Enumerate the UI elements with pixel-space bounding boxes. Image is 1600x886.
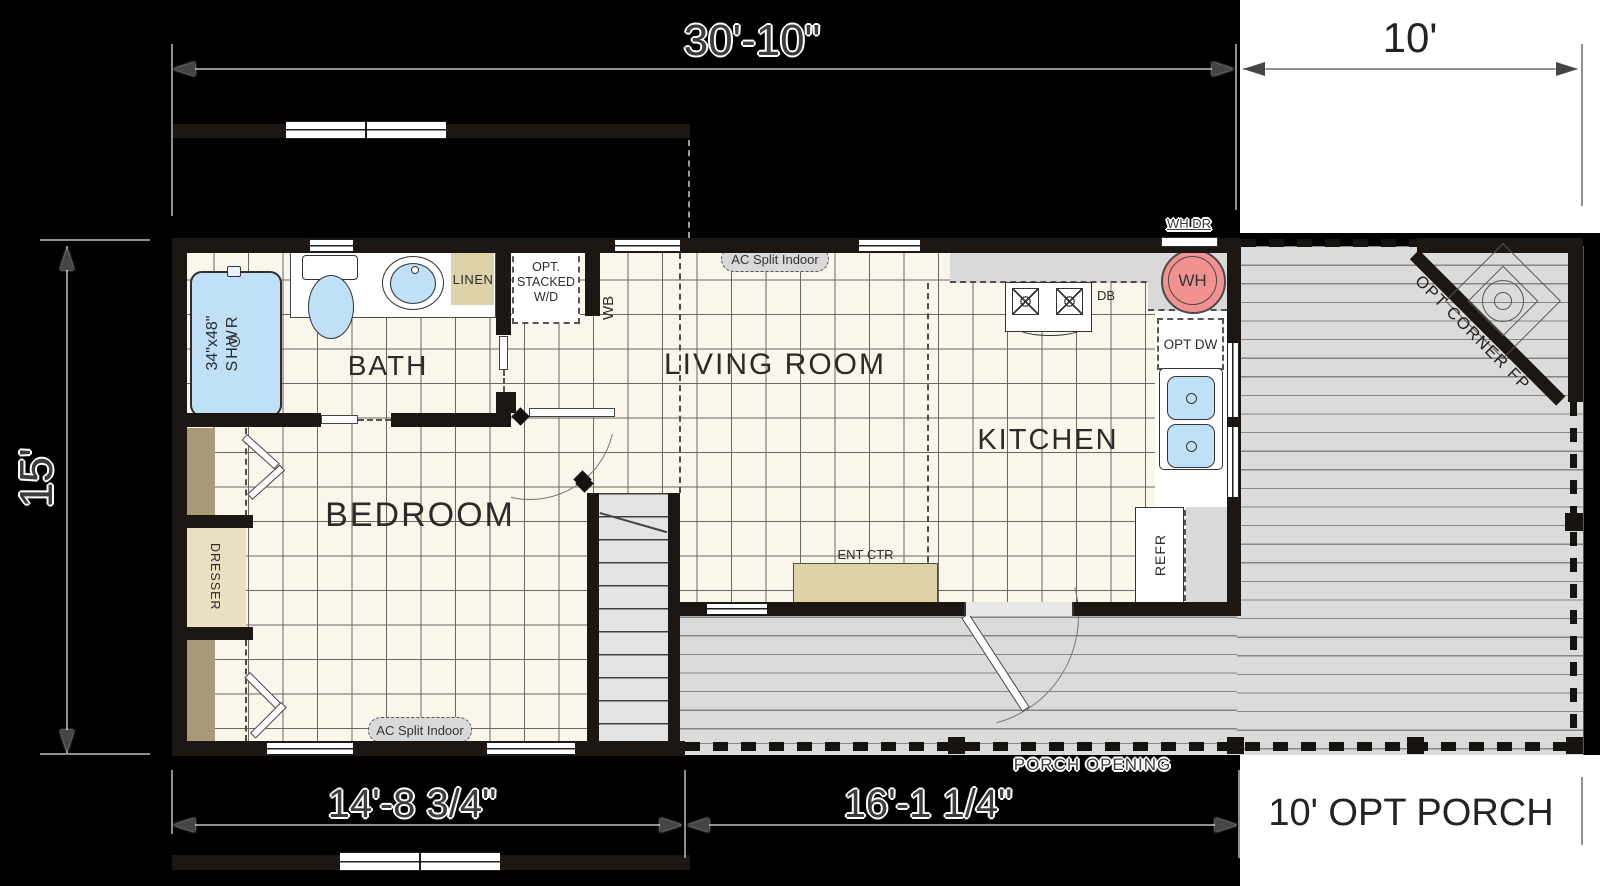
dim-arrow-left bbox=[173, 818, 195, 832]
window bbox=[1227, 427, 1239, 497]
closet-wall-stub bbox=[172, 515, 253, 528]
window bbox=[859, 239, 920, 252]
pocket-door-leaf bbox=[499, 336, 508, 370]
sink-drain-icon bbox=[1186, 441, 1197, 452]
wall-bedroom-bottom bbox=[172, 741, 685, 756]
window-divider bbox=[419, 852, 421, 871]
pocket-door-leaf bbox=[321, 415, 358, 424]
burner-icon bbox=[1056, 288, 1083, 315]
window bbox=[1227, 343, 1239, 417]
window bbox=[707, 603, 767, 615]
dim-arrow-right bbox=[660, 818, 682, 832]
dim-line bbox=[176, 68, 1232, 70]
stairs bbox=[599, 493, 668, 750]
stairs-wall-right bbox=[668, 493, 680, 751]
wall-corner-block bbox=[496, 392, 516, 413]
dim-arrow-up bbox=[60, 248, 74, 270]
shower-label: 34"x48" SHWR bbox=[203, 275, 249, 411]
wh-access-door bbox=[1161, 237, 1218, 247]
stairs-wall-left bbox=[587, 493, 599, 751]
dresser-label: DRESSER bbox=[208, 543, 222, 610]
porch-opening-rail bbox=[685, 742, 1583, 751]
porch-post bbox=[1227, 737, 1244, 754]
dim-arrow-left bbox=[1243, 62, 1265, 76]
window bbox=[615, 239, 680, 252]
wh-dr-label: WH DR bbox=[1154, 216, 1224, 231]
extension-line bbox=[1581, 777, 1583, 845]
wd-label-line1: OPT. bbox=[514, 260, 578, 275]
door-leaf bbox=[529, 408, 615, 417]
porch-top-dashed-edge bbox=[1241, 239, 1417, 247]
dim-arrow-left bbox=[687, 818, 709, 832]
oven-handle-arc bbox=[1016, 318, 1084, 336]
porch-door-opening bbox=[964, 602, 1074, 616]
dim-module2: 16'-1 1/4" bbox=[778, 782, 1078, 827]
opt-dw-box: OPT DW bbox=[1157, 318, 1224, 370]
porch-post bbox=[1407, 737, 1424, 754]
porch-post bbox=[1566, 737, 1583, 754]
closet-block-lower bbox=[184, 640, 215, 741]
wall-left bbox=[172, 238, 187, 756]
dresser: DRESSER bbox=[184, 527, 246, 627]
room-label-bedroom: BEDROOM bbox=[320, 496, 520, 535]
dim-arrow-right bbox=[1212, 62, 1234, 76]
extension-line bbox=[684, 770, 686, 858]
porch-right-dashed-edge bbox=[1570, 402, 1577, 742]
wall-bath-right bbox=[496, 253, 511, 335]
window-divider bbox=[365, 121, 367, 139]
wb-label: WB bbox=[600, 258, 617, 320]
opt-stacked-wd-box: OPT. STACKED W/D bbox=[512, 246, 580, 324]
shower-size-label: 34"x48" bbox=[203, 275, 223, 411]
ac-split-label: AC Split Indoor bbox=[731, 252, 818, 267]
wd-label-line2: STACKED bbox=[514, 275, 578, 290]
closet-wall-stub bbox=[172, 627, 253, 640]
opt-dw-label: OPT DW bbox=[1164, 337, 1218, 352]
wd-label-line3: W/D bbox=[514, 290, 578, 305]
refrigerator: REFR bbox=[1135, 507, 1184, 603]
room-label-kitchen: KITCHEN bbox=[948, 424, 1148, 457]
ac-split-indoor-bedroom: AC Split Indoor bbox=[368, 717, 472, 743]
dim-arrow-right bbox=[1556, 62, 1578, 76]
room-label-bath: BATH bbox=[308, 350, 468, 382]
extension-line bbox=[1235, 44, 1237, 210]
module-connector-dashed bbox=[688, 140, 690, 238]
water-heater-inner-ring: WH bbox=[1168, 256, 1217, 305]
refr-side-counter bbox=[1186, 507, 1227, 605]
extension-line bbox=[1581, 44, 1583, 206]
porch-opening-label: PORCH OPENING bbox=[990, 755, 1195, 775]
porch-post bbox=[1565, 513, 1583, 531]
wall-bath-bottom bbox=[184, 413, 321, 427]
fireplace-flue-icon-inner bbox=[1494, 292, 1512, 310]
closet-block-upper bbox=[184, 428, 215, 515]
dim-line bbox=[66, 246, 68, 754]
extension-tick bbox=[40, 239, 150, 241]
wh-label: WH bbox=[1178, 271, 1206, 291]
shower-name-label: SHWR bbox=[223, 275, 243, 411]
porch-post bbox=[948, 737, 965, 754]
floorplan-canvas: 34"x48" SHWR LINEN BATH OPT. STACKED W/D… bbox=[0, 0, 1600, 886]
burner-icon bbox=[1012, 288, 1039, 315]
extension-line bbox=[1238, 770, 1240, 858]
vanity-faucet-icon bbox=[411, 266, 419, 274]
closet-dashed-line bbox=[245, 640, 247, 741]
dim-top-main: 30'-10" bbox=[602, 16, 902, 66]
dim-line bbox=[1243, 68, 1577, 70]
pocket-door-track bbox=[358, 419, 391, 421]
dim-module1: 14'-8 3/4" bbox=[262, 782, 562, 827]
window-mullion bbox=[1227, 417, 1241, 427]
toilet-bowl-icon bbox=[308, 275, 354, 339]
porch-corner-wall-right bbox=[1568, 238, 1583, 402]
db-label: DB bbox=[1097, 288, 1137, 303]
dim-arrow-right bbox=[1215, 818, 1237, 832]
extension-tick bbox=[40, 753, 150, 755]
window bbox=[267, 742, 353, 755]
ac-split-label: AC Split Indoor bbox=[376, 723, 463, 738]
wall-wb-stub bbox=[585, 253, 600, 316]
wall-bath-bottom bbox=[391, 413, 511, 427]
dim-top-porch: 10' bbox=[1330, 14, 1490, 62]
window bbox=[487, 742, 575, 755]
refr-label: REFR bbox=[1152, 534, 1168, 576]
room-label-living: LIVING ROOM bbox=[655, 348, 895, 382]
window bbox=[310, 239, 353, 252]
pocket-door-track bbox=[503, 370, 505, 392]
dim-left-height: 15' bbox=[9, 413, 61, 543]
dim-arrow-down bbox=[60, 730, 74, 752]
module-marriage-line bbox=[679, 253, 681, 493]
sink-drain-icon bbox=[1186, 393, 1197, 404]
opt-porch-caption: 10' OPT PORCH bbox=[1250, 792, 1572, 835]
dim-arrow-left bbox=[173, 62, 195, 76]
